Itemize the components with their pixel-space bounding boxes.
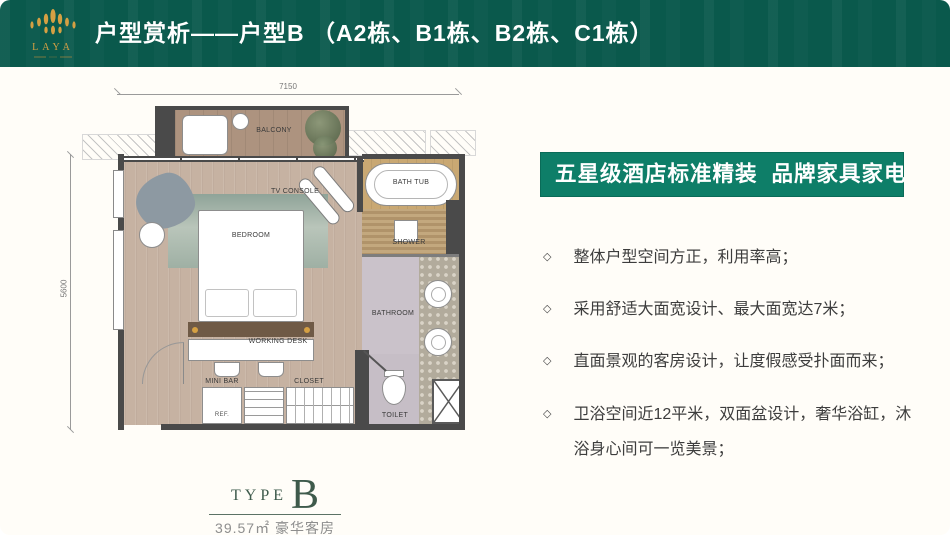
window-wall-top (124, 156, 364, 162)
window-left-upper (113, 170, 124, 218)
dimension-height: 5600 (59, 280, 68, 298)
label-bath-tub: BATH TUB (393, 179, 429, 186)
presentation-slide: LAYA 户型赏析——户型B （A2栋、B1栋、B2栋、C1栋） 7150 56… (0, 0, 950, 535)
closet-unit (286, 387, 354, 424)
desk-chair (214, 362, 240, 377)
unit-area: 39.57㎡ (215, 520, 270, 535)
wash-basin (424, 328, 452, 356)
logo-droplets-icon (30, 9, 75, 34)
unit-type-caption: TYPE B 39.57㎡ 豪华客房 (195, 477, 355, 535)
wall-shower-divider (362, 254, 459, 257)
lounge-chair (182, 115, 228, 155)
feature-item: ◇ 采用舒适大面宽设计、最大面宽达7米； (543, 292, 925, 327)
logo-wordmark: LAYA (32, 42, 74, 53)
label-shower: SHOWER (392, 239, 425, 246)
feature-item: ◇ 整体户型空间方正，利用率高； (543, 240, 925, 275)
hatch-area-right (348, 130, 426, 156)
label-tv-console: TV CONSOLE (271, 188, 319, 195)
floorplan: 7150 5600 (62, 82, 492, 474)
wall-balcony-pillar (155, 106, 175, 160)
feature-text: 整体户型空间方正，利用率高； (573, 240, 797, 275)
wall-pillar-right (446, 200, 465, 257)
diamond-bullet-icon: ◇ (543, 397, 551, 467)
label-bedroom: BEDROOM (232, 232, 270, 239)
laya-logo: LAYA (22, 4, 84, 64)
label-ref: REF. (215, 412, 229, 418)
highlight-banner: 五星级酒店标准精装 品牌家具家电 (540, 152, 904, 197)
label-closet: CLOSET (294, 378, 324, 385)
wall-balcony-top (155, 106, 349, 110)
wall-inner-lower (355, 350, 369, 430)
dimension-line-left (70, 154, 71, 430)
type-title: TYPE B (195, 477, 355, 513)
pillow (253, 289, 297, 317)
mini-bar-fridge (202, 387, 242, 424)
type-underline (209, 514, 341, 515)
unit-room-type: 豪华客房 (275, 520, 335, 535)
bed (198, 210, 304, 322)
feature-item: ◇ 卫浴空间近12平米，双面盆设计，奢华浴缸，沐浴身心间可一览美景； (543, 397, 925, 467)
dimension-width: 7150 (279, 82, 297, 91)
pillow (205, 289, 249, 317)
wall-right (459, 154, 465, 430)
hatch-area-far-right (430, 130, 476, 156)
type-prefix: TYPE (231, 487, 287, 504)
header-bar: LAYA 户型赏析——户型B （A2栋、B1栋、B2栋、C1栋） (0, 0, 950, 67)
diamond-bullet-icon: ◇ (543, 240, 551, 275)
type-letter: B (291, 472, 319, 518)
unit-area-text: 39.57㎡ 豪华客房 (195, 518, 355, 535)
feature-text: 直面景观的客房设计，让度假感受扑面而来； (573, 344, 893, 379)
label-balcony: BALCONY (256, 127, 292, 134)
headboard (188, 322, 314, 337)
wall-bottom (161, 424, 465, 430)
page-title: 户型赏析——户型B （A2栋、B1栋、B2栋、C1栋） (95, 0, 654, 67)
wall-balcony-right (345, 106, 349, 160)
balcony-table (232, 113, 249, 130)
diamond-bullet-icon: ◇ (543, 344, 551, 379)
label-bathroom: BATHROOM (372, 310, 414, 317)
feature-text: 卫浴空间近12平米，双面盆设计，奢华浴缸，沐浴身心间可一览美景； (573, 397, 925, 467)
bedside-lamp-icon (192, 327, 198, 333)
wash-basin (424, 280, 452, 308)
feature-item: ◇ 直面景观的客房设计，让度假感受扑面而来； (543, 344, 925, 379)
desk-chair (258, 362, 284, 377)
feature-text: 采用舒适大面宽设计、最大面宽达7米； (573, 292, 854, 327)
wall-inner-upper (357, 156, 363, 212)
diamond-bullet-icon: ◇ (543, 292, 551, 327)
dimension-line-top (117, 94, 459, 95)
label-mini-bar: MINI BAR (205, 378, 239, 385)
feature-list: ◇ 整体户型空间方正，利用率高； ◇ 采用舒适大面宽设计、最大面宽达7米； ◇ … (543, 240, 925, 484)
label-working-desk: WORKING DESK (249, 338, 308, 345)
wall-deck-top (362, 154, 465, 159)
window-left-lower (113, 230, 124, 330)
shelf-unit (244, 387, 284, 424)
bedside-lamp-icon (304, 327, 310, 333)
side-table (139, 222, 165, 248)
label-toilet: TOILET (382, 412, 408, 419)
